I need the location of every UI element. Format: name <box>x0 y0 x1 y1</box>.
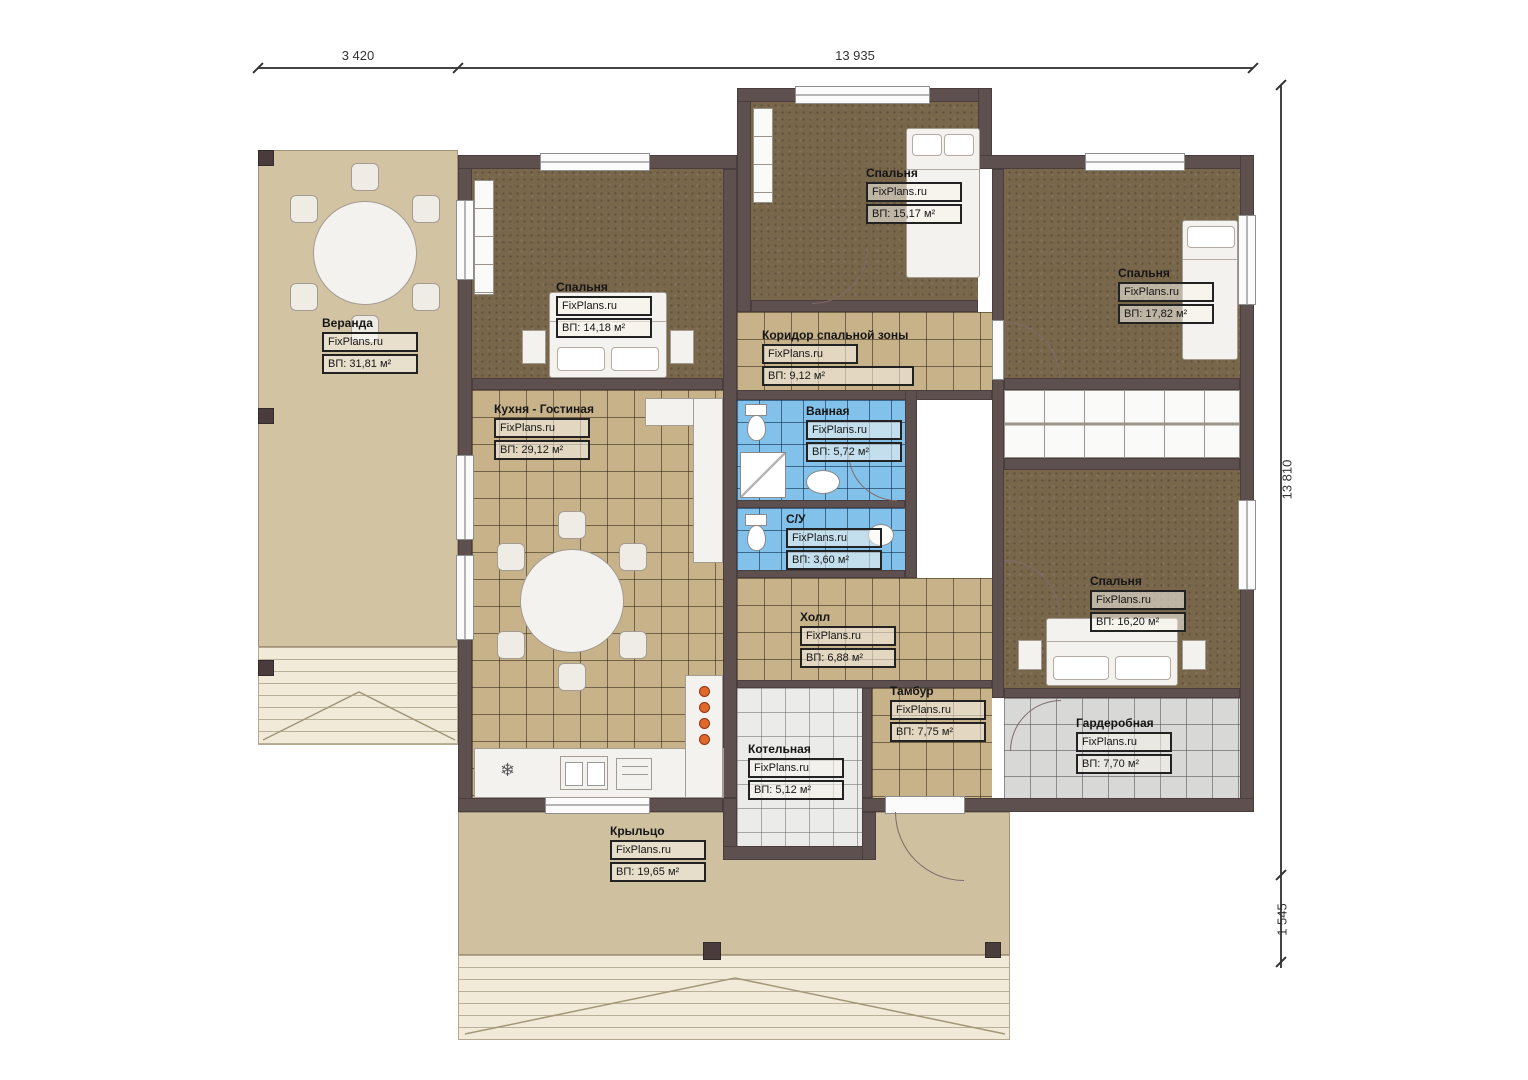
wall-boiler-tambour-divider <box>862 688 872 798</box>
room-label-corridor: Коридор спальной зоны FixPlans.ru ВП: 9,… <box>762 328 914 388</box>
wall-mid-vertical-right <box>992 169 1004 698</box>
room-name: Кухня - Гостиная <box>494 402 594 416</box>
wall-boiler-bottom <box>723 846 876 860</box>
veranda-post-bottom <box>258 660 274 676</box>
brand-box: FixPlans.ru <box>748 758 844 778</box>
brand-box: FixPlans.ru <box>1118 282 1214 302</box>
window-bedroom-tr-right <box>1238 215 1256 305</box>
dim-right-main-label: 13 810 <box>1280 425 1295 535</box>
window-kitchen-bottom <box>545 796 650 814</box>
room-label-porch: Крыльцо FixPlans.ru ВП: 19,65 м² <box>610 824 706 884</box>
brand-box: FixPlans.ru <box>1090 590 1186 610</box>
room-name: Коридор спальной зоны <box>762 328 914 342</box>
floor-plan: ❄ Веранда FixPlans.ru ВП: 31,81 м² Спаль… <box>0 0 1528 1080</box>
nightstand <box>670 330 694 364</box>
room-name: С/У <box>786 512 882 526</box>
porch-post-right <box>985 942 1001 958</box>
kitchen-appliance <box>616 758 652 790</box>
area-box: ВП: 29,12 м² <box>494 440 590 460</box>
room-name: Котельная <box>748 742 844 756</box>
area-box: ВП: 6,88 м² <box>800 648 896 668</box>
window-bedroom-tm-top <box>795 86 930 104</box>
dining-chair <box>619 543 647 571</box>
brand-box: FixPlans.ru <box>556 296 652 316</box>
nightstand <box>1018 640 1042 670</box>
wall-bedroom-tr-bottom <box>1004 378 1240 390</box>
wall-mid-vertical-left <box>723 169 737 798</box>
room-label-boiler: Котельная FixPlans.ru ВП: 5,12 м² <box>748 742 844 802</box>
dim-top-main-label: 13 935 <box>800 48 910 63</box>
closet-band-right-wing <box>1004 390 1240 458</box>
brand-box: FixPlans.ru <box>786 528 882 548</box>
veranda-chair <box>290 195 318 223</box>
veranda-deck-gable <box>259 648 459 746</box>
dim-top-left-label: 3 420 <box>298 48 418 63</box>
porch-post-left <box>703 942 721 960</box>
brand-box: FixPlans.ru <box>1076 732 1172 752</box>
wall-corridor-top <box>751 300 978 312</box>
wall-bedroom-br-bottom <box>1004 688 1240 698</box>
room-name: Спальня <box>1090 574 1186 588</box>
window-kitchen-left-2 <box>456 555 474 640</box>
room-label-bathroom: Ванная FixPlans.ru ВП: 5,72 м² <box>806 404 902 464</box>
area-box: ВП: 7,75 м² <box>890 722 986 742</box>
dim-right-bottom-label: 1 545 <box>1275 870 1290 970</box>
dining-chair <box>497 543 525 571</box>
room-name: Тамбур <box>890 684 986 698</box>
veranda-chair <box>351 163 379 191</box>
window-kitchen-left-1 <box>456 455 474 540</box>
room-label-wc: С/У FixPlans.ru ВП: 3,60 м² <box>786 512 882 572</box>
brand-box: FixPlans.ru <box>800 626 896 646</box>
porch-deck-gable <box>459 956 1011 1041</box>
wall-protrusion-left <box>737 88 751 312</box>
room-name: Веранда <box>322 316 418 330</box>
room-label-bedroom-tr: Спальня FixPlans.ru ВП: 17,82 м² <box>1118 266 1214 326</box>
porch-deck <box>458 955 1010 1040</box>
area-box: ВП: 16,20 м² <box>1090 612 1186 632</box>
wc-toilet <box>744 514 768 552</box>
dining-chair <box>558 511 586 539</box>
veranda-post-mid <box>258 408 274 424</box>
dimension-line-top <box>258 67 1253 69</box>
window-bedroom-tl-left <box>456 200 474 280</box>
room-label-veranda: Веранда FixPlans.ru ВП: 31,81 м² <box>322 316 418 376</box>
brand-box: FixPlans.ru <box>762 344 858 364</box>
wall-corridor-bottom <box>737 390 992 400</box>
room-label-hall: Холл FixPlans.ru ВП: 6,88 м² <box>800 610 896 670</box>
area-box: ВП: 17,82 м² <box>1118 304 1214 324</box>
nightstand <box>1182 640 1206 670</box>
area-box: ВП: 5,12 м² <box>748 780 844 800</box>
corridor-right-opening <box>992 320 1004 380</box>
brand-box: FixPlans.ru <box>610 840 706 860</box>
shower <box>740 452 786 498</box>
wall-bath-wc-divider <box>737 500 905 508</box>
room-name: Крыльцо <box>610 824 706 838</box>
room-name: Гардеробная <box>1076 716 1172 730</box>
brand-box: FixPlans.ru <box>806 420 902 440</box>
room-name: Спальня <box>1118 266 1214 280</box>
window-bedroom-tr-top <box>1085 153 1185 171</box>
area-box: ВП: 5,72 м² <box>806 442 902 462</box>
room-name: Спальня <box>866 166 962 180</box>
kitchen-sink <box>560 756 608 790</box>
dining-chair <box>558 663 586 691</box>
veranda-post-top <box>258 150 274 166</box>
brand-box: FixPlans.ru <box>322 332 418 352</box>
area-box: ВП: 7,70 м² <box>1076 754 1172 774</box>
window-bedroom-tl-top <box>540 153 650 171</box>
closet-bedroom-tl <box>474 180 494 295</box>
nightstand <box>522 330 546 364</box>
window-bedroom-br-right <box>1238 500 1256 590</box>
area-box: ВП: 31,81 м² <box>322 354 418 374</box>
area-box: ВП: 14,18 м² <box>556 318 652 338</box>
room-name: Холл <box>800 610 896 624</box>
area-box: ВП: 3,60 м² <box>786 550 882 570</box>
brand-box: FixPlans.ru <box>866 182 962 202</box>
closet-bedroom-tm <box>753 108 773 203</box>
area-box: ВП: 9,12 м² <box>762 366 914 386</box>
wall-closet-bottom <box>1004 458 1240 470</box>
dining-chair <box>497 631 525 659</box>
veranda-table <box>313 201 417 305</box>
room-label-bedroom-tl: Спальня FixPlans.ru ВП: 14,18 м² <box>556 280 652 340</box>
bathroom-toilet <box>744 404 768 442</box>
veranda-deck <box>258 647 458 745</box>
room-label-kitchen: Кухня - Гостиная FixPlans.ru ВП: 29,12 м… <box>494 402 594 462</box>
wall-bedroom-tl-bottom <box>472 378 723 390</box>
area-box: ВП: 15,17 м² <box>866 204 962 224</box>
brand-box: FixPlans.ru <box>494 418 590 438</box>
veranda-chair <box>412 195 440 223</box>
wall-bath-right <box>905 390 917 578</box>
veranda-chair <box>412 283 440 311</box>
room-label-bedroom-br: Спальня FixPlans.ru ВП: 16,20 м² <box>1090 574 1186 634</box>
sofa-side <box>693 398 723 563</box>
room-label-tambour: Тамбур FixPlans.ru ВП: 7,75 м² <box>890 684 986 744</box>
bathroom-sink <box>806 470 840 494</box>
room-name: Спальня <box>556 280 652 294</box>
snowflake-icon: ❄ <box>500 760 515 781</box>
veranda-chair <box>290 283 318 311</box>
room-label-wardrobe: Гардеробная FixPlans.ru ВП: 7,70 м² <box>1076 716 1172 776</box>
wall-boiler-right-ext <box>862 812 876 860</box>
area-box: ВП: 19,65 м² <box>610 862 706 882</box>
room-label-bedroom-tm: Спальня FixPlans.ru ВП: 15,17 м² <box>866 166 962 226</box>
room-name: Ванная <box>806 404 902 418</box>
brand-box: FixPlans.ru <box>890 700 986 720</box>
dining-chair <box>619 631 647 659</box>
dining-table <box>520 549 624 653</box>
